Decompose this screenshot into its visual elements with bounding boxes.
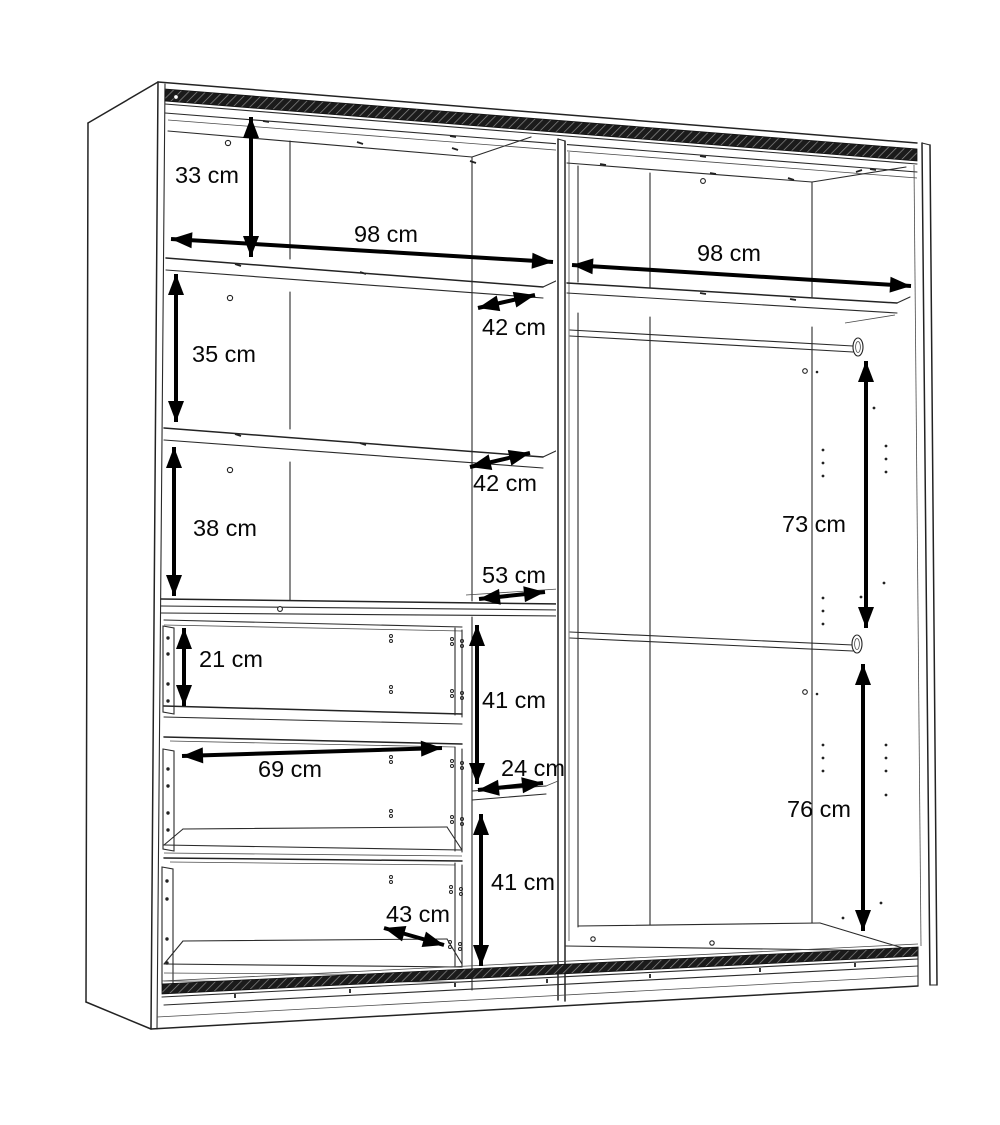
dim-arrow-43cm [384,928,444,945]
dim-label-33cm: 33 cm [175,162,239,188]
dim-label-98cm-left: 98 cm [354,221,418,247]
dim-arrow-98cm-right [572,265,911,286]
dimension-arrows [171,117,911,966]
right-shelf [567,283,910,323]
dim-label-43cm: 43 cm [386,901,450,927]
diagram-canvas: 33 cm 98 cm 98 cm 42 cm 35 cm 42 cm 38 c… [0,0,1000,1125]
dim-label-73cm: 73 cm [782,511,846,537]
dim-label-35cm: 35 cm [192,341,256,367]
dim-label-53cm: 53 cm [482,562,546,588]
dim-label-38cm: 38 cm [193,515,257,541]
dim-label-41cm-lower: 41 cm [491,869,555,895]
left-shelf-upper [166,258,558,298]
right-compartment-ceiling [567,163,906,927]
wardrobe-dimension-diagram: 33 cm 98 cm 98 cm 42 cm 35 cm 42 cm 38 c… [0,0,1000,1125]
dim-label-41cm-upper: 41 cm [482,687,546,713]
hanging-rod-lower [570,632,862,695]
dim-label-69cm: 69 cm [258,756,322,782]
dim-arrow-69cm [182,748,442,756]
dim-label-42cm-upper: 42 cm [482,314,546,340]
dresser-top [161,589,563,616]
dim-label-76cm: 76 cm [787,796,851,822]
hanging-rod-upper [570,330,863,373]
dim-label-24cm: 24 cm [501,755,565,781]
shelf-pin-holes [822,407,888,920]
right-side-panel [914,143,937,985]
dim-label-42cm-lower: 42 cm [473,470,537,496]
dim-label-98cm-right: 98 cm [697,240,761,266]
left-side-panel [86,82,165,1029]
bottom-door-track [151,944,918,1029]
dim-arrow-53cm [479,592,545,599]
dim-label-21cm: 21 cm [199,646,263,672]
top-door-track [158,82,917,178]
dim-arrow-42cm-upper [478,295,535,308]
